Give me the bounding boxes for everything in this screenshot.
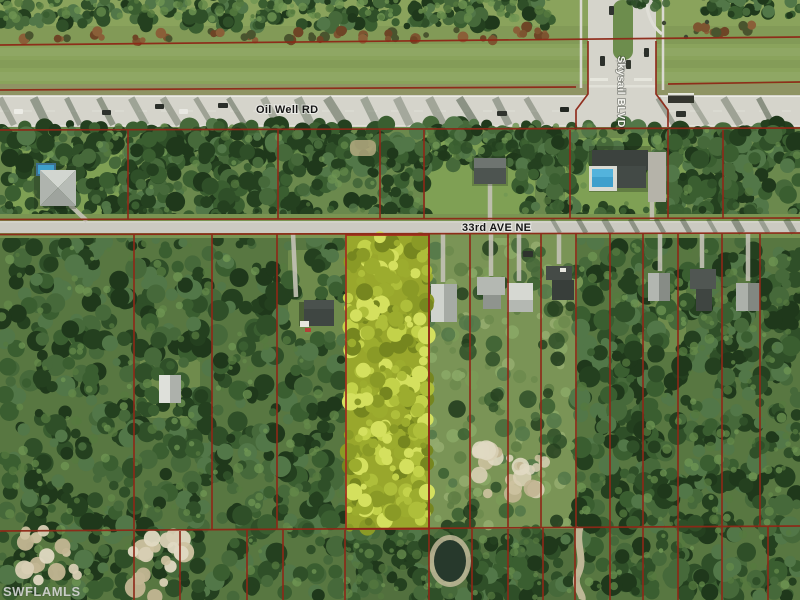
car [609, 6, 614, 15]
road-edge-line [0, 222, 800, 223]
car [14, 109, 23, 114]
aerial-parcel-map: Oil Well RD 33rd AVE NE Skysail BLVD SWF… [0, 0, 800, 600]
parked-vehicle [300, 321, 309, 327]
ave-33-ne-label: 33rd AVE NE [462, 222, 531, 234]
car [560, 107, 569, 112]
house [507, 283, 533, 312]
map-canvas: Oil Well RD 33rd AVE NE Skysail BLVD SWF… [0, 0, 800, 600]
house [648, 273, 670, 301]
car [644, 48, 649, 57]
car [600, 56, 605, 66]
car [155, 104, 164, 109]
mow-stripe [0, 48, 800, 56]
skysail-blvd-label: Skysail BLVD [615, 56, 627, 128]
house-hip-roof [34, 163, 76, 209]
mow-stripe [0, 60, 800, 68]
mls-watermark: SWFLAMLS [3, 584, 81, 599]
stop-bar [590, 78, 608, 81]
car [218, 103, 228, 108]
driveway-pad [648, 152, 666, 202]
car [497, 111, 507, 116]
oil-well-rd-label: Oil Well RD [256, 104, 318, 116]
driveway [293, 233, 296, 297]
mow-stripe [0, 72, 800, 81]
house-white-roof [159, 375, 181, 403]
highlighted-parcel [340, 231, 436, 535]
car [523, 251, 533, 257]
car [676, 111, 686, 117]
bare-patch [350, 140, 376, 156]
car [102, 110, 111, 115]
ave-pavement [0, 221, 800, 233]
house [736, 283, 760, 311]
pond [434, 540, 466, 582]
parked-vehicle [305, 328, 311, 332]
car [179, 109, 188, 114]
house-dark-roof [472, 156, 508, 186]
median [613, 0, 633, 60]
stop-bar [634, 78, 652, 81]
